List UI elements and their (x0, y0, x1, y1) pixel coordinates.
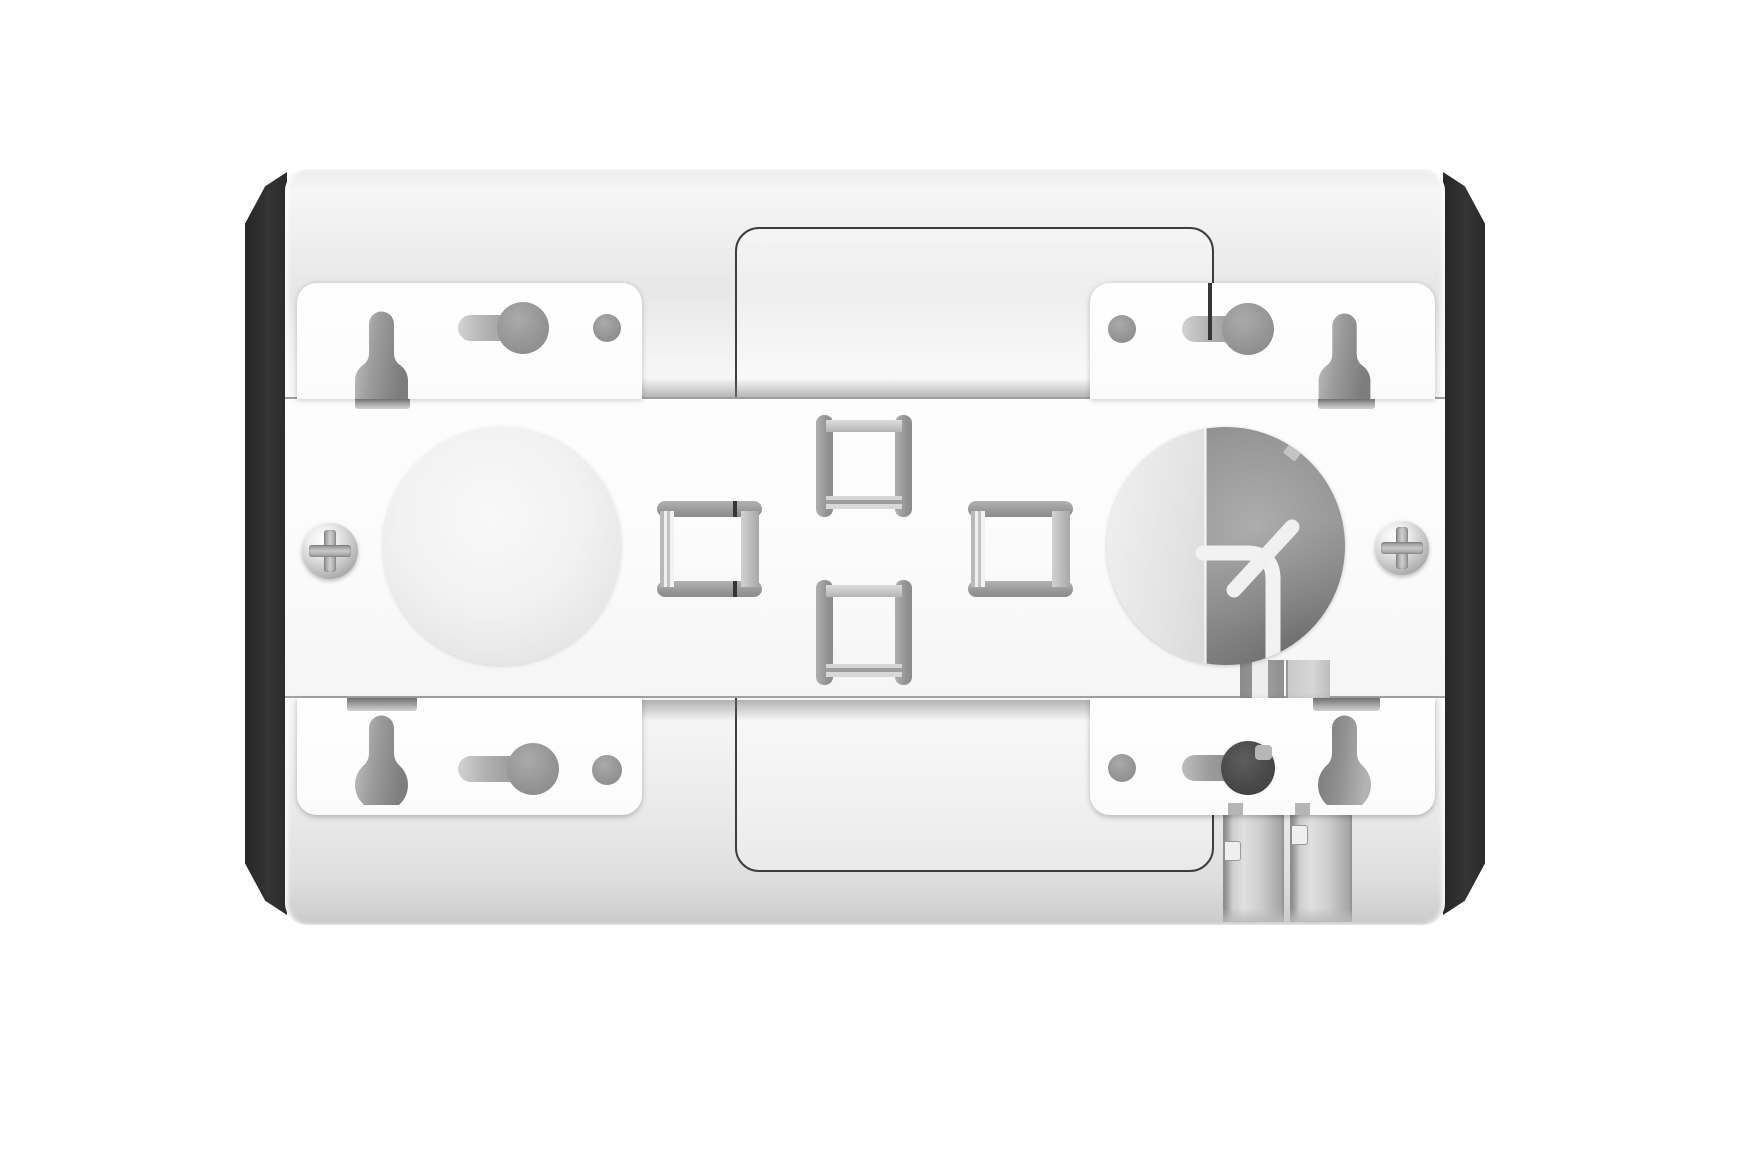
channel-nub (1292, 825, 1308, 845)
band-anchor-notch (1313, 698, 1380, 711)
bracket-channel-slit (1295, 803, 1310, 815)
cable-clip-top (816, 415, 912, 517)
screw-slot (309, 545, 352, 557)
anchor-cutout (1318, 313, 1371, 399)
band-anchor-notch (347, 698, 417, 711)
knockout-dome (383, 427, 621, 665)
band-top-shadow (642, 378, 1092, 397)
panel-seam-on-clip (733, 501, 737, 517)
cable-segment (1252, 660, 1268, 700)
bracket-bottom-right (1090, 698, 1435, 815)
keyhole-bulb-open (1221, 741, 1275, 795)
keyhole-bulb (1222, 303, 1274, 355)
cavity-tab (1283, 444, 1302, 462)
routed-cable (1107, 427, 1345, 665)
screw-right (1375, 521, 1429, 575)
clip-rail (826, 585, 902, 597)
cable-opening (1107, 427, 1345, 665)
clip-rail (1052, 511, 1070, 587)
keyhole-bulb (497, 302, 549, 354)
pilot-hole (1108, 315, 1136, 343)
clip-rail (826, 664, 902, 677)
cable-channel-outer (1290, 812, 1352, 922)
pilot-hole (1108, 754, 1136, 782)
pilot-hole (592, 755, 622, 785)
anchor-cutout (1318, 715, 1371, 805)
cable-channel-inner (1223, 812, 1284, 922)
screw-slot (1381, 542, 1422, 554)
cable-clip-bottom (816, 580, 912, 685)
cable-channel-upper-light (1286, 660, 1330, 700)
bracket-top-left (297, 283, 642, 399)
pilot-hole (593, 314, 621, 342)
product-render-canvas (0, 0, 1757, 1159)
anchor-cutout (355, 311, 408, 399)
channel-nub (1225, 841, 1241, 861)
end-cap-right (1443, 169, 1485, 918)
keyhole-bulb (507, 743, 559, 795)
keyhole-bulb-notch (1255, 745, 1272, 760)
bracket-top-right (1090, 283, 1435, 399)
panel-seam-over-bracket (1208, 283, 1212, 340)
screw-left (302, 523, 358, 579)
panel-seam-on-clip (733, 581, 737, 597)
clip-rail (660, 511, 674, 587)
device-body (285, 169, 1445, 925)
clip-rail (971, 511, 985, 587)
end-cap-left (245, 169, 287, 918)
clip-rail (741, 511, 759, 587)
clip-rail (826, 420, 902, 432)
bracket-channel-slit (1228, 803, 1243, 815)
bracket-bottom-left (297, 698, 642, 815)
cable-clip-right (968, 501, 1073, 597)
clip-rail (826, 496, 902, 509)
anchor-cutout (355, 715, 408, 805)
band-bottom-shadow (642, 700, 1090, 721)
cable-clip-left (657, 501, 762, 597)
